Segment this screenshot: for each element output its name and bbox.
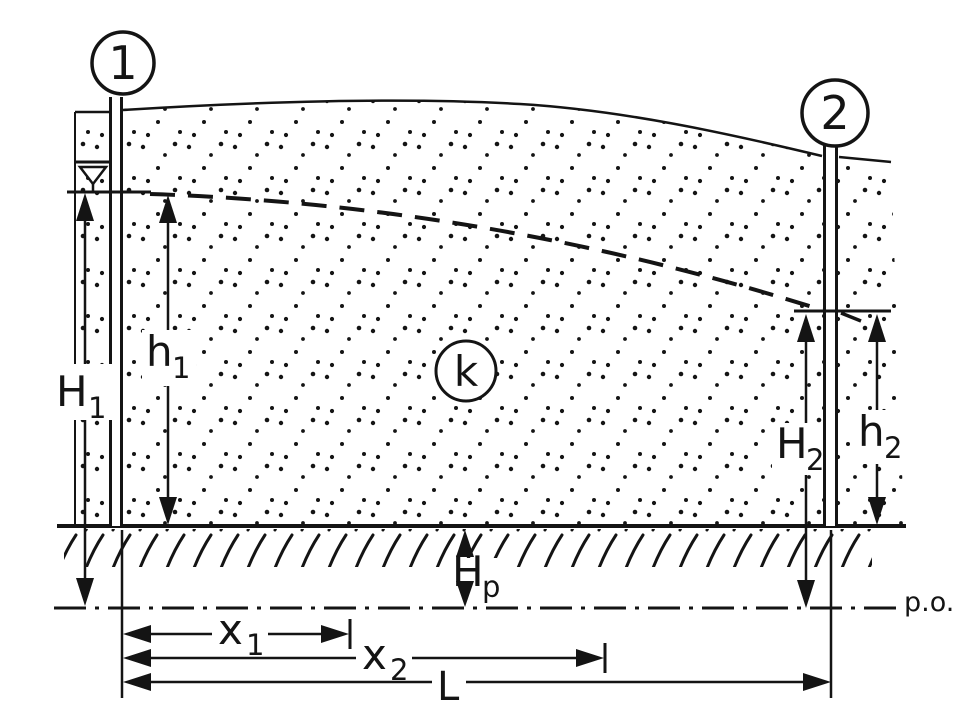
observation-well-1 <box>109 97 123 526</box>
dim-H2-base: H <box>776 419 808 468</box>
observation-well-2 <box>823 143 838 526</box>
arrowhead-left-icon <box>123 649 151 667</box>
dim-x2-label: x 2 <box>362 630 408 687</box>
dim-x1-base: x <box>218 605 243 654</box>
arrowhead-left-icon <box>123 625 151 643</box>
dim-h1-sub: 1 <box>172 351 190 385</box>
arrowhead-down-icon <box>76 578 94 606</box>
dim-x1-label: x 1 <box>218 605 264 662</box>
arrowhead-down-icon <box>797 580 815 608</box>
reference-plane-label: p.o. <box>904 587 954 618</box>
arrowhead-right-icon <box>321 625 349 643</box>
dim-H1-sub: 1 <box>88 391 106 425</box>
dim-H2-sub: 2 <box>806 443 824 477</box>
well-1-number: 1 <box>108 36 137 90</box>
dim-x2-sub: 2 <box>390 653 408 687</box>
well-2-number: 2 <box>820 86 849 140</box>
arrowhead-right-icon <box>803 673 831 691</box>
permeability-label: k <box>454 347 479 396</box>
dim-H1-base: H <box>56 367 88 416</box>
arrowhead-left-icon <box>123 673 151 691</box>
dim-h2-base: h <box>858 407 885 456</box>
permeability-badge: k <box>436 341 496 401</box>
dim-Hp-base: H <box>452 547 484 596</box>
dim-Hp-sub: p <box>482 570 500 604</box>
dim-h2-sub: 2 <box>884 431 902 465</box>
dim-L-label: L <box>437 664 460 708</box>
dim-x2-base: x <box>362 630 387 679</box>
dim-L <box>123 673 831 691</box>
dim-h1-base: h <box>146 327 173 376</box>
groundwater-flow-diagram: H 1 h 1 H 2 h 2 H p x 1 x 2 L p.o. 1 2 k <box>0 0 963 708</box>
well-1-badge: 1 <box>92 32 154 94</box>
arrowhead-right-icon <box>576 649 604 667</box>
dim-x1-sub: 1 <box>246 628 264 662</box>
dim-L-base: L <box>437 664 460 708</box>
diagram-canvas: H 1 h 1 H 2 h 2 H p x 1 x 2 L p.o. 1 2 k <box>0 0 963 708</box>
well-2-badge: 2 <box>802 80 868 146</box>
